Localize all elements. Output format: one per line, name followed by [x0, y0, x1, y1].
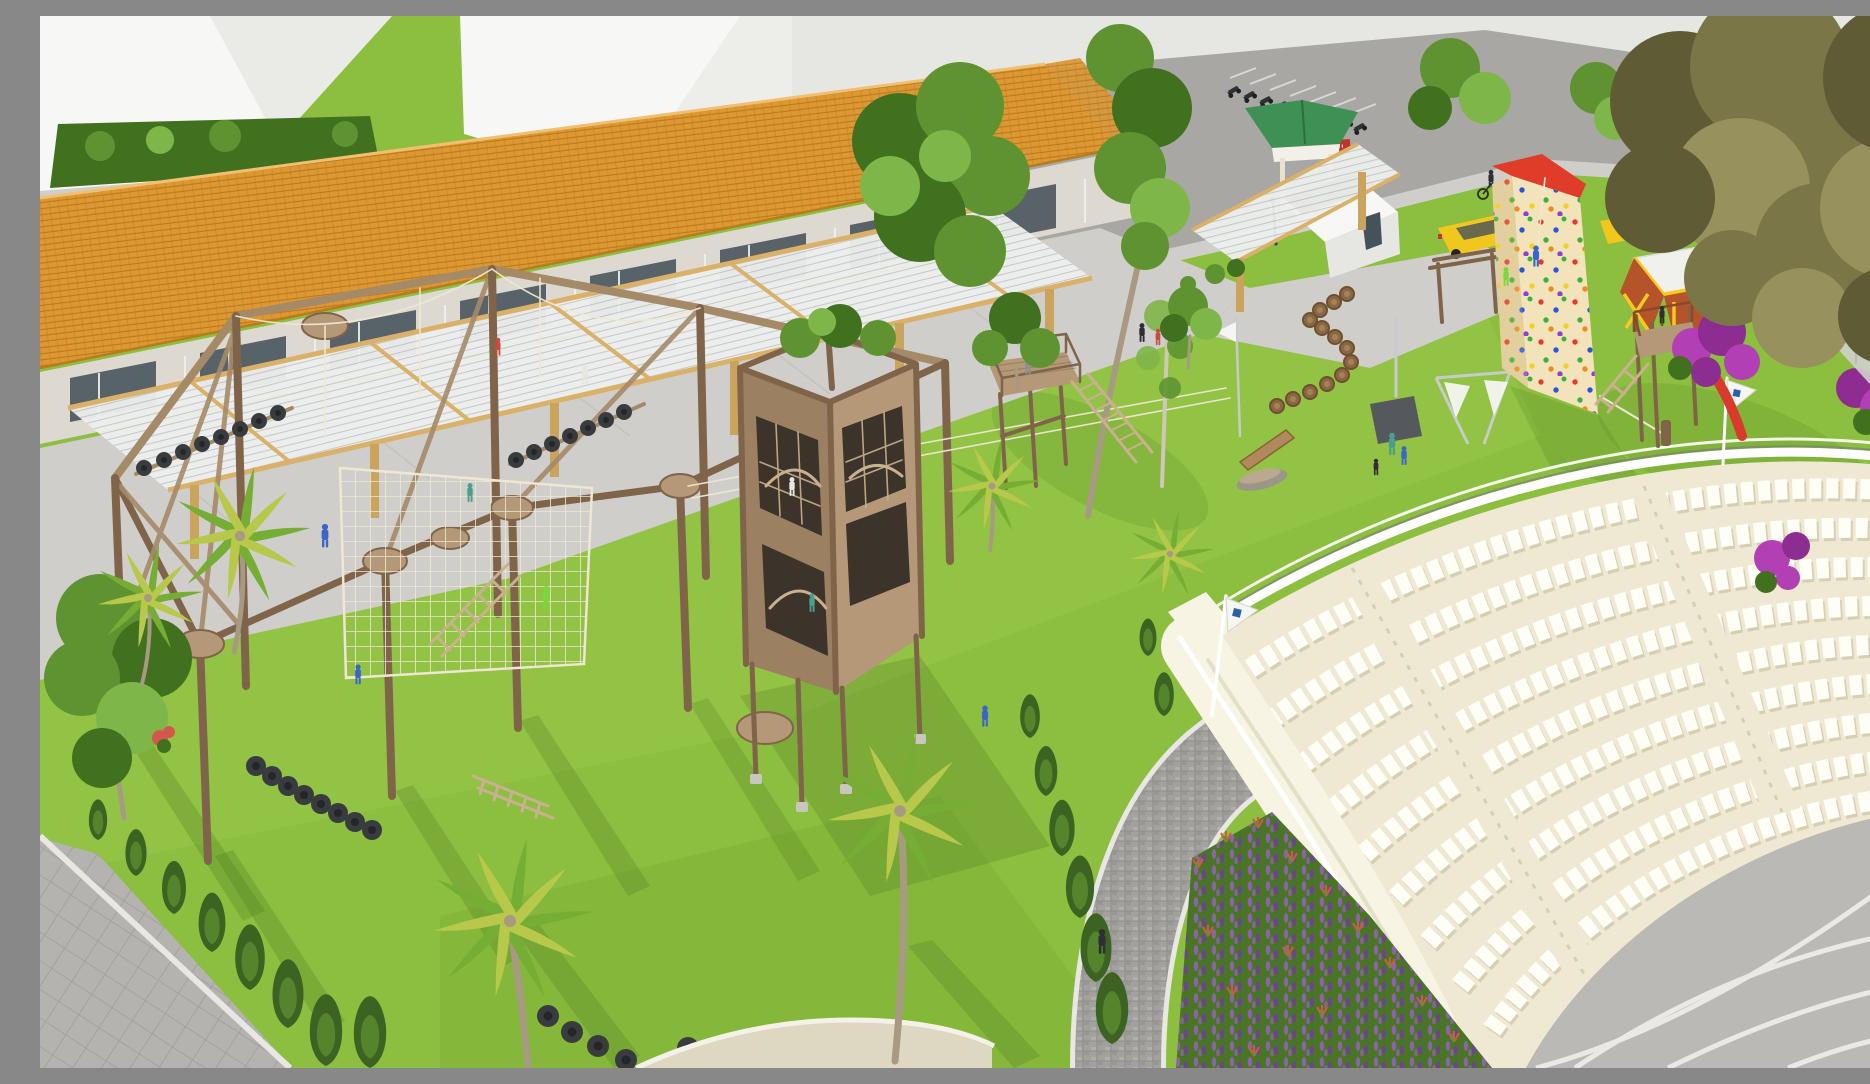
zipline-anchor-stump: [1661, 420, 1671, 446]
rendered-scene: [40, 16, 1870, 1068]
climbing-net: [340, 468, 592, 678]
park-rendering: [40, 16, 1870, 1068]
info-panel: [1370, 396, 1422, 444]
